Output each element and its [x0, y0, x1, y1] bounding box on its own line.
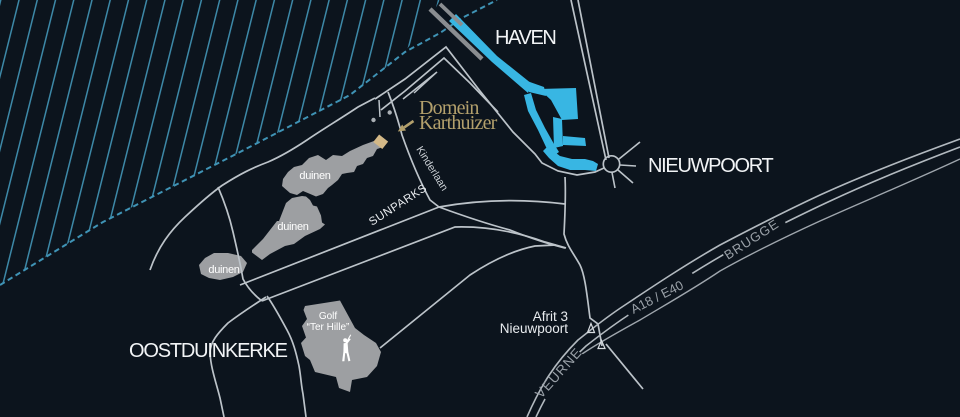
svg-text:HAVEN: HAVEN — [495, 27, 555, 49]
svg-text:“Ter Hille”: “Ter Hille” — [307, 322, 350, 333]
svg-text:Nieuwpoort: Nieuwpoort — [500, 321, 569, 336]
svg-text:Golf: Golf — [319, 311, 338, 322]
svg-text:NIEUWPOORT: NIEUWPOORT — [648, 155, 773, 177]
svg-text:duinen: duinen — [299, 170, 330, 182]
svg-text:duinen: duinen — [277, 221, 308, 233]
svg-text:OOSTDUINKERKE: OOSTDUINKERKE — [129, 340, 288, 362]
svg-text:duinen: duinen — [208, 264, 239, 276]
svg-text:Karthuizer: Karthuizer — [419, 112, 498, 134]
